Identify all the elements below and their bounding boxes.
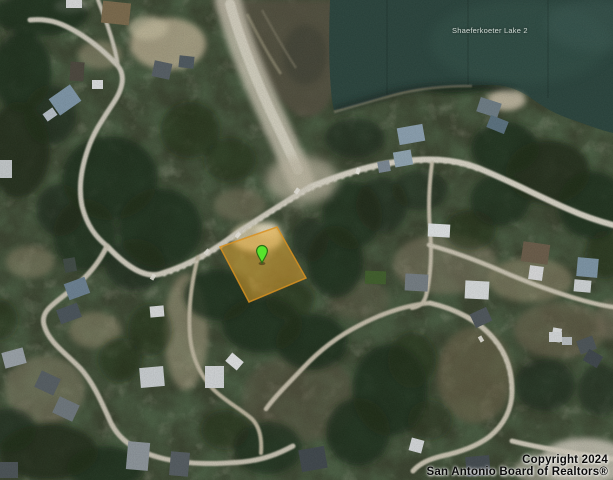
copyright-notice: Copyright 2024 San Antonio Board of Real… [427,454,608,478]
copyright-line2: San Antonio Board of Realtors® [427,466,608,478]
grain-overlay-light [0,0,613,480]
lake-label: Shaeferkoeter Lake 2 [452,26,528,35]
satellite-map: Shaeferkoeter Lake 2 Copyright 2024 San … [0,0,613,480]
map-canvas [0,0,613,480]
copyright-line1: Copyright 2024 [427,454,608,466]
